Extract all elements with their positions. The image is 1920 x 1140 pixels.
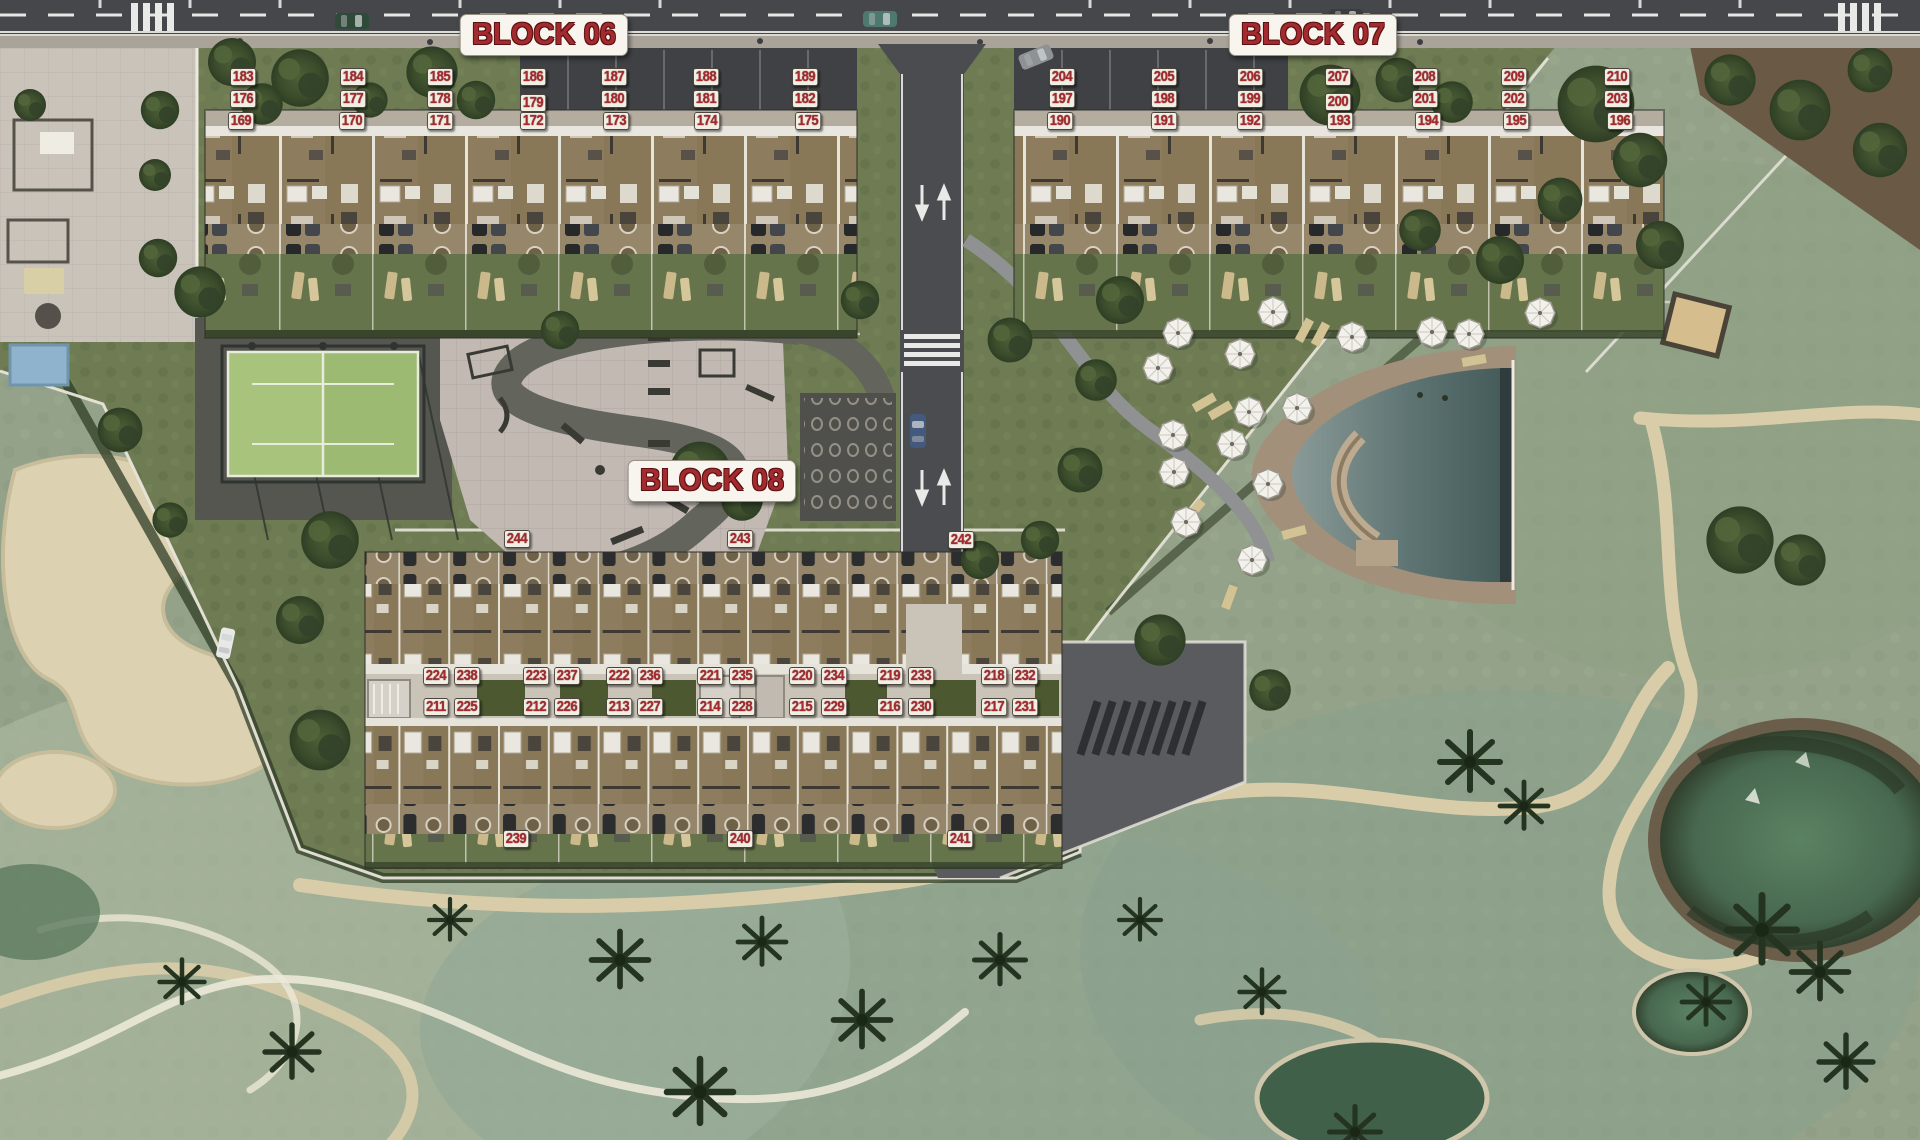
- unit-badge-212[interactable]: 212: [523, 698, 549, 716]
- unit-badge-179[interactable]: 179: [520, 94, 546, 112]
- unit-badge-243[interactable]: 243: [727, 530, 753, 548]
- unit-badge-199[interactable]: 199: [1237, 90, 1263, 108]
- unit-badge-173[interactable]: 173: [603, 112, 629, 130]
- unit-badge-240[interactable]: 240: [727, 830, 753, 848]
- unit-badge-172[interactable]: 172: [520, 112, 546, 130]
- unit-badge-182[interactable]: 182: [792, 90, 818, 108]
- unit-badge-204[interactable]: 204: [1049, 68, 1075, 86]
- unit-badge-226[interactable]: 226: [554, 698, 580, 716]
- unit-badge-236[interactable]: 236: [637, 667, 663, 685]
- unit-badge-231[interactable]: 231: [1012, 698, 1038, 716]
- unit-badge-207[interactable]: 207: [1325, 68, 1351, 86]
- unit-badge-169[interactable]: 169: [228, 112, 254, 130]
- unit-badge-224[interactable]: 224: [423, 667, 449, 685]
- unit-badge-184[interactable]: 184: [340, 68, 366, 86]
- unit-badge-175[interactable]: 175: [795, 112, 821, 130]
- unit-badge-203[interactable]: 203: [1604, 90, 1630, 108]
- unit-badge-202[interactable]: 202: [1501, 90, 1527, 108]
- unit-badge-244[interactable]: 244: [504, 530, 530, 548]
- block-label-block-07: BLOCK 07: [1229, 14, 1398, 56]
- unit-badge-192[interactable]: 192: [1237, 112, 1263, 130]
- label-layer: 1831841851861871881891761771781791801811…: [0, 0, 1920, 1140]
- unit-badge-196[interactable]: 196: [1607, 112, 1633, 130]
- unit-badge-242[interactable]: 242: [948, 531, 974, 549]
- unit-badge-195[interactable]: 195: [1503, 112, 1529, 130]
- unit-badge-227[interactable]: 227: [637, 698, 663, 716]
- unit-badge-235[interactable]: 235: [729, 667, 755, 685]
- unit-badge-237[interactable]: 237: [554, 667, 580, 685]
- unit-badge-191[interactable]: 191: [1151, 112, 1177, 130]
- unit-badge-188[interactable]: 188: [693, 68, 719, 86]
- unit-badge-200[interactable]: 200: [1325, 93, 1351, 111]
- unit-badge-181[interactable]: 181: [693, 90, 719, 108]
- unit-badge-170[interactable]: 170: [339, 112, 365, 130]
- unit-badge-208[interactable]: 208: [1412, 68, 1438, 86]
- unit-badge-171[interactable]: 171: [427, 112, 453, 130]
- unit-badge-178[interactable]: 178: [427, 90, 453, 108]
- unit-badge-215[interactable]: 215: [789, 698, 815, 716]
- unit-badge-241[interactable]: 241: [947, 830, 973, 848]
- unit-badge-230[interactable]: 230: [908, 698, 934, 716]
- unit-badge-187[interactable]: 187: [601, 68, 627, 86]
- unit-badge-209[interactable]: 209: [1501, 68, 1527, 86]
- unit-badge-238[interactable]: 238: [454, 667, 480, 685]
- unit-badge-232[interactable]: 232: [1012, 667, 1038, 685]
- unit-badge-194[interactable]: 194: [1415, 112, 1441, 130]
- unit-badge-198[interactable]: 198: [1151, 90, 1177, 108]
- unit-badge-216[interactable]: 216: [877, 698, 903, 716]
- unit-badge-225[interactable]: 225: [454, 698, 480, 716]
- unit-badge-213[interactable]: 213: [606, 698, 632, 716]
- siteplan-map: 1831841851861871881891761771781791801811…: [0, 0, 1920, 1140]
- unit-badge-222[interactable]: 222: [606, 667, 632, 685]
- unit-badge-221[interactable]: 221: [697, 667, 723, 685]
- unit-badge-228[interactable]: 228: [729, 698, 755, 716]
- unit-badge-218[interactable]: 218: [981, 667, 1007, 685]
- block-label-block-08: BLOCK 08: [628, 460, 797, 502]
- unit-badge-201[interactable]: 201: [1412, 90, 1438, 108]
- unit-badge-234[interactable]: 234: [821, 667, 847, 685]
- unit-badge-177[interactable]: 177: [340, 90, 366, 108]
- unit-badge-197[interactable]: 197: [1049, 90, 1075, 108]
- unit-badge-220[interactable]: 220: [789, 667, 815, 685]
- unit-badge-176[interactable]: 176: [230, 90, 256, 108]
- unit-badge-180[interactable]: 180: [601, 90, 627, 108]
- unit-badge-189[interactable]: 189: [792, 68, 818, 86]
- unit-badge-210[interactable]: 210: [1604, 68, 1630, 86]
- unit-badge-214[interactable]: 214: [697, 698, 723, 716]
- unit-badge-233[interactable]: 233: [908, 667, 934, 685]
- unit-badge-205[interactable]: 205: [1151, 68, 1177, 86]
- unit-badge-185[interactable]: 185: [427, 68, 453, 86]
- unit-badge-183[interactable]: 183: [230, 68, 256, 86]
- unit-badge-186[interactable]: 186: [520, 68, 546, 86]
- block-label-block-06: BLOCK 06: [460, 14, 629, 56]
- unit-badge-239[interactable]: 239: [503, 830, 529, 848]
- unit-badge-211[interactable]: 211: [423, 698, 448, 716]
- unit-badge-206[interactable]: 206: [1237, 68, 1263, 86]
- unit-badge-190[interactable]: 190: [1047, 112, 1073, 130]
- unit-badge-217[interactable]: 217: [981, 698, 1007, 716]
- unit-badge-193[interactable]: 193: [1327, 112, 1353, 130]
- unit-badge-174[interactable]: 174: [694, 112, 720, 130]
- unit-badge-219[interactable]: 219: [877, 667, 903, 685]
- unit-badge-223[interactable]: 223: [523, 667, 549, 685]
- unit-badge-229[interactable]: 229: [821, 698, 847, 716]
